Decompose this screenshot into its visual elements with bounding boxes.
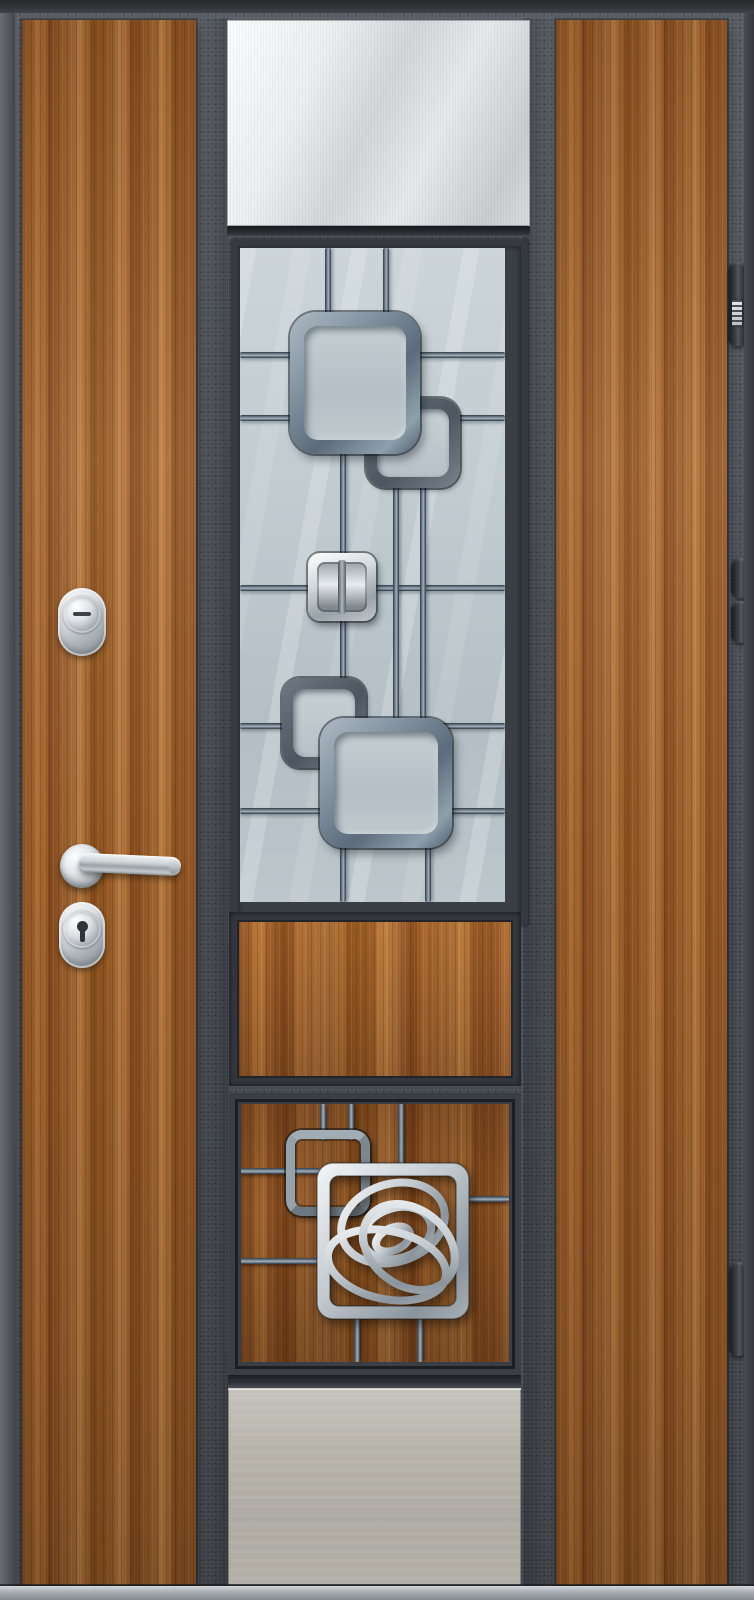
chrome-square-accent xyxy=(308,553,376,621)
right-wood-panel xyxy=(556,20,727,1585)
lower-grille xyxy=(241,1104,509,1362)
top-steel-panel xyxy=(227,20,530,226)
top-steel-panel-shadow xyxy=(227,226,530,236)
door-photo xyxy=(0,0,754,1600)
grille-bar xyxy=(241,1258,318,1264)
kick-panel-shadow xyxy=(228,1375,521,1388)
bottom-steel-panel xyxy=(228,1388,521,1585)
hinge-label xyxy=(732,300,742,326)
door-right-edge xyxy=(744,13,754,1586)
door-left-edge xyxy=(0,13,15,1586)
door-top-edge xyxy=(0,0,754,13)
grille-bar xyxy=(417,1318,423,1362)
steel-square xyxy=(320,718,452,848)
grille-bar xyxy=(420,455,426,723)
wood-insert-frame xyxy=(229,912,521,1086)
grille-bar xyxy=(468,1196,509,1202)
upper-cylinder-lock xyxy=(58,588,106,656)
steel-square xyxy=(290,312,420,454)
grille-bar xyxy=(393,455,399,723)
rose-plate xyxy=(317,1163,469,1319)
grille-bar xyxy=(354,1318,360,1362)
threshold xyxy=(0,1586,754,1600)
grille-bar xyxy=(398,1104,404,1168)
wood-insert-panel xyxy=(239,922,511,1076)
lower-cylinder-lock xyxy=(59,902,105,968)
column-shadow-left xyxy=(202,18,228,1586)
left-wood-panel xyxy=(22,20,196,1585)
column-shadow-right xyxy=(524,18,556,1586)
lower-grille-panel xyxy=(229,1093,521,1375)
glass-window xyxy=(240,248,505,902)
